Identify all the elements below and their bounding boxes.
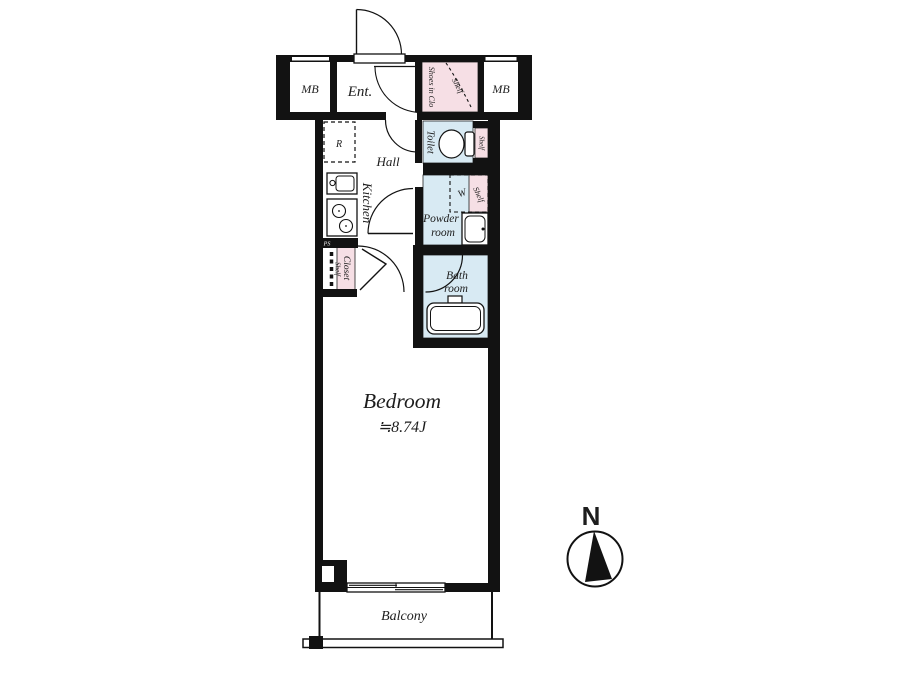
wall-toilet-shelf-bottom (473, 158, 488, 163)
label-bedroom-area: ≒8.74J (378, 419, 427, 436)
bedroom-door-panel (360, 249, 386, 290)
label-balcony: Balcony (381, 609, 428, 624)
meter-box-right-vent (485, 57, 517, 62)
wall-bath-left (413, 253, 423, 348)
wall-toilet-bottom (423, 163, 500, 175)
shoe-closet-door-arc (375, 67, 421, 113)
floorplan-svg: MB MB Ent. Shoes in Clo Shelf R Hall Kit… (0, 0, 900, 675)
wall-outer-right-top (518, 55, 532, 120)
entry-door-sill (354, 54, 405, 63)
washbasin-faucet-dot (482, 228, 485, 231)
compass-north-label: N (582, 501, 601, 531)
floorplan-image: MB MB Ent. Shoes in Clo Shelf R Hall Kit… (0, 0, 900, 675)
wall-band2-right (417, 112, 532, 120)
label-powder-line1: Powder (422, 213, 459, 225)
label-mb-left: MB (300, 82, 319, 96)
wall-toilet-shelf-top (473, 121, 488, 128)
label-bedroom: Bedroom (363, 389, 441, 413)
wall-outer-left-top (276, 55, 290, 120)
stove-burner-1-dot (338, 210, 340, 212)
label-closet-shelf: Shelf (333, 262, 341, 277)
wall-bottom-right-of-window (445, 583, 500, 592)
label-hall: Hall (375, 154, 400, 169)
wall-toilet-left (415, 120, 422, 163)
wall-band2-left (276, 112, 386, 120)
wall-main-left (315, 120, 323, 583)
label-pipe-space: PS (323, 242, 331, 248)
label-refrigerator: R (335, 139, 342, 150)
wall-powder-bottom (413, 245, 500, 255)
hall-door-arc (386, 120, 418, 152)
label-bath-line2: room (444, 283, 468, 295)
room-fills (337, 62, 488, 338)
wall-shoes-mbright (478, 55, 484, 112)
corner-block-notch (322, 566, 334, 582)
bathtub (427, 303, 484, 334)
toilet-bowl-icon (439, 130, 464, 158)
bathtub-faucet-deck (448, 296, 462, 303)
stove-burner-2-dot (345, 225, 347, 227)
walls (276, 55, 532, 592)
label-entrance: Ent. (347, 84, 373, 100)
toilet-tank (465, 132, 474, 156)
wall-powder-left (415, 187, 423, 245)
label-toilet: Toilet (425, 130, 436, 155)
entry-door-arc (357, 10, 402, 55)
wall-main-right (488, 112, 500, 592)
label-mb-right: MB (491, 82, 510, 96)
wall-mbleft-ent (330, 62, 337, 112)
wall-closet-bottom (315, 289, 357, 297)
wall-bath-bottom (413, 338, 500, 348)
label-toilet-shelf: Shelf (477, 136, 485, 151)
balcony-drain-block (309, 636, 323, 649)
compass-needle-icon (585, 531, 612, 582)
compass: N (568, 501, 623, 587)
label-shoe-closet: Shoes in Clo (427, 67, 436, 107)
wall-ent-shoes (415, 62, 422, 112)
balcony-railing (303, 639, 503, 648)
label-kitchen: Kitchen (360, 182, 375, 223)
label-powder-line2: room (431, 227, 455, 239)
label-bath-line1: Bath (446, 270, 468, 282)
meter-box-left-vent (292, 57, 330, 62)
wall-kitchen-bottom-ps (315, 238, 358, 248)
